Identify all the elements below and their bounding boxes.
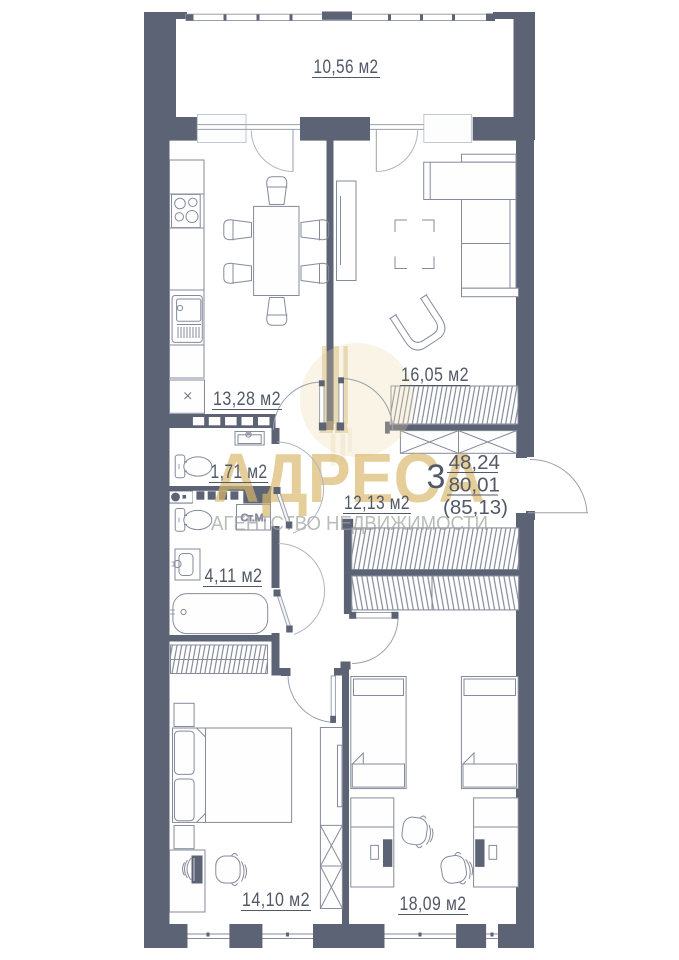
svg-text:16,05 м2: 16,05 м2 (401, 365, 469, 386)
svg-text:80,01: 80,01 (449, 474, 500, 497)
svg-text:4,11 м2: 4,11 м2 (205, 566, 263, 587)
svg-text:3: 3 (427, 458, 446, 496)
svg-text:10,56 м2: 10,56 м2 (314, 57, 379, 78)
svg-text:14,10 м2: 14,10 м2 (242, 890, 310, 911)
svg-text:48,24: 48,24 (449, 451, 500, 474)
svg-text:18,09 м2: 18,09 м2 (400, 894, 467, 915)
svg-text:1,71 м2: 1,71 м2 (211, 462, 268, 483)
svg-text:12,13 м2: 12,13 м2 (344, 493, 410, 514)
svg-text:13,28 м2: 13,28 м2 (213, 389, 281, 410)
svg-text:(85,13): (85,13) (443, 496, 508, 519)
